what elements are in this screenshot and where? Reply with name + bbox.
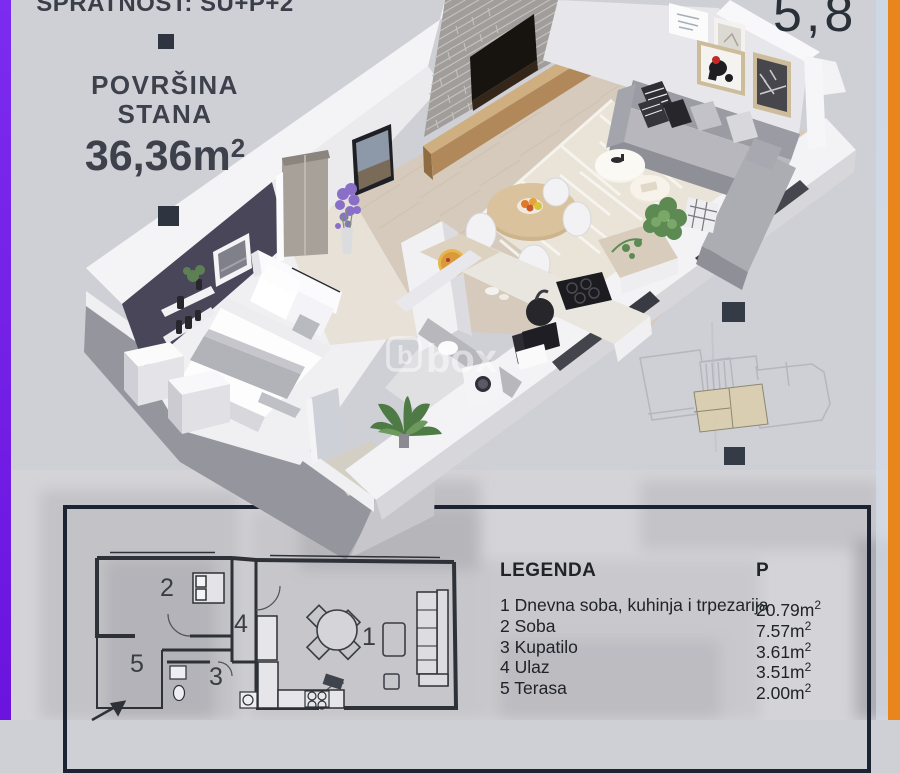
svg-text:4: 4: [234, 610, 248, 638]
svg-text:1: 1: [362, 623, 376, 651]
svg-text:3: 3: [209, 663, 223, 691]
svg-text:box: box: [426, 337, 497, 381]
svg-text:2: 2: [160, 574, 174, 602]
svg-text:5: 5: [130, 650, 144, 678]
svg-text:b: b: [397, 340, 413, 370]
